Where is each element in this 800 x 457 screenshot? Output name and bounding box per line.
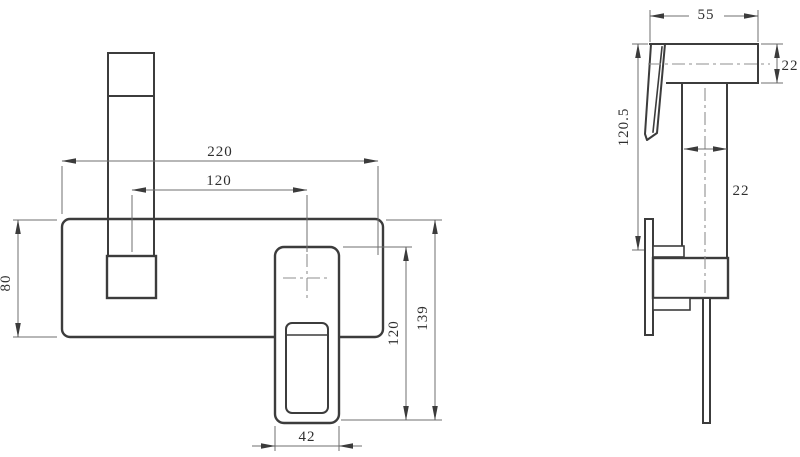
technical-drawing-canvas: 220 120 80 120 139 [0, 0, 800, 457]
front-view: 220 120 80 120 139 [0, 53, 442, 451]
wall-plate-side [645, 219, 653, 335]
dim-side-overall-height: 120.5 [616, 44, 648, 250]
spout-base-front [107, 256, 156, 298]
dim-front-handle-length: 120 [343, 247, 412, 420]
dim-label-80: 80 [0, 275, 14, 292]
spout-front [108, 53, 154, 256]
dim-label-22-body: 22 [733, 183, 750, 199]
lever-side [645, 44, 665, 140]
dim-side-spout-height: 22 [761, 44, 799, 83]
lower-bracket-side [653, 298, 690, 310]
dim-front-overall-height: 139 [386, 220, 442, 420]
dim-label-139: 139 [415, 305, 431, 331]
dim-label-42: 42 [299, 429, 316, 445]
dim-side-body-width: 22 [684, 149, 750, 199]
dim-front-overall-width: 220 [62, 144, 378, 255]
lever-body [645, 44, 665, 140]
dim-label-120-5: 120.5 [616, 108, 632, 147]
dim-label-22-spout: 22 [782, 58, 799, 74]
faucet-dimension-drawing: 220 120 80 120 139 [0, 0, 800, 457]
dim-front-handle-width: 42 [252, 426, 362, 451]
dim-label-55: 55 [698, 7, 715, 23]
dim-side-spout-projection: 55 [650, 6, 758, 42]
dim-label-120-vertical: 120 [386, 320, 402, 346]
dim-front-spout-to-handle: 120 [132, 173, 307, 252]
handle-rod-side [703, 298, 710, 423]
dim-label-220: 220 [207, 144, 233, 160]
valve-body-side [653, 258, 728, 298]
side-view: 55 22 120.5 22 [616, 6, 799, 423]
dim-label-120-horizontal: 120 [206, 173, 232, 189]
dim-front-plate-height: 80 [0, 220, 57, 337]
upper-bracket-side [653, 246, 684, 257]
